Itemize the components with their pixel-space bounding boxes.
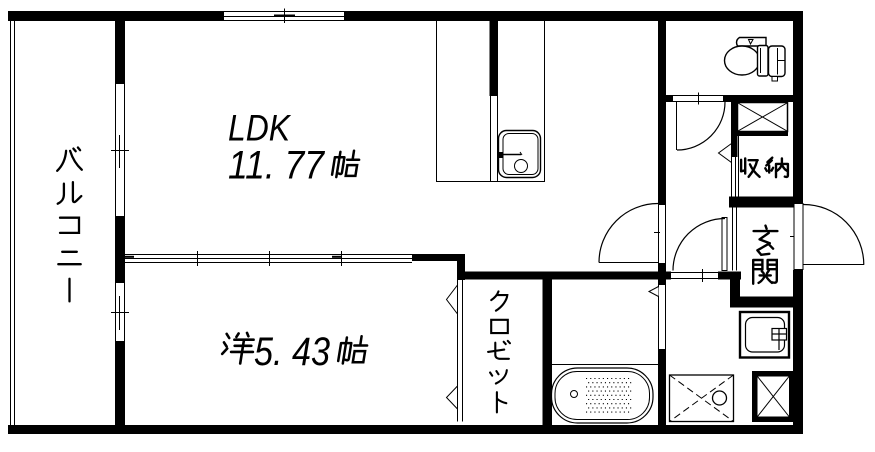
svg-text:11. 77: 11. 77: [228, 144, 326, 188]
svg-text:5. 43: 5. 43: [254, 330, 330, 374]
svg-text:LDK: LDK: [228, 108, 292, 149]
